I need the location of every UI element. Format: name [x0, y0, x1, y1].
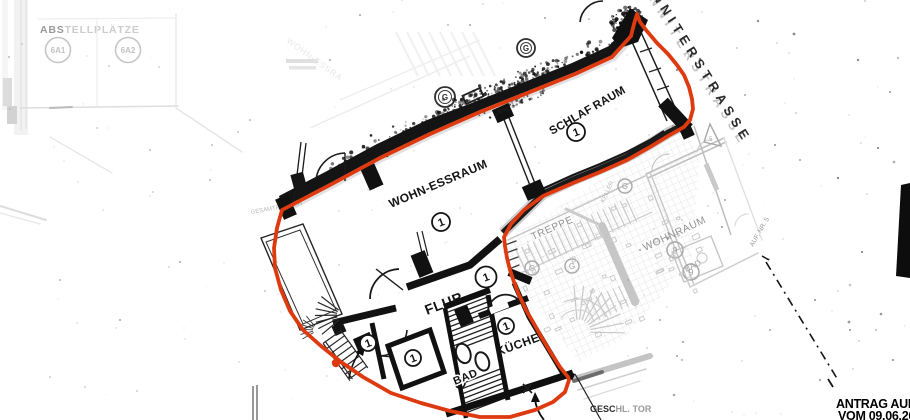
svg-text:VOM 09.06.200: VOM 09.06.200: [838, 409, 910, 420]
svg-text:6A1: 6A1: [51, 46, 66, 55]
svg-text:G: G: [622, 182, 628, 191]
svg-text:G: G: [569, 262, 575, 271]
svg-text:6A2: 6A2: [121, 46, 136, 55]
svg-text:GESCHL. TOR: GESCHL. TOR: [590, 404, 652, 414]
svg-text:ABSTELLPLÄTZE: ABSTELLPLÄTZE: [40, 23, 140, 36]
svg-text:G: G: [523, 44, 529, 53]
